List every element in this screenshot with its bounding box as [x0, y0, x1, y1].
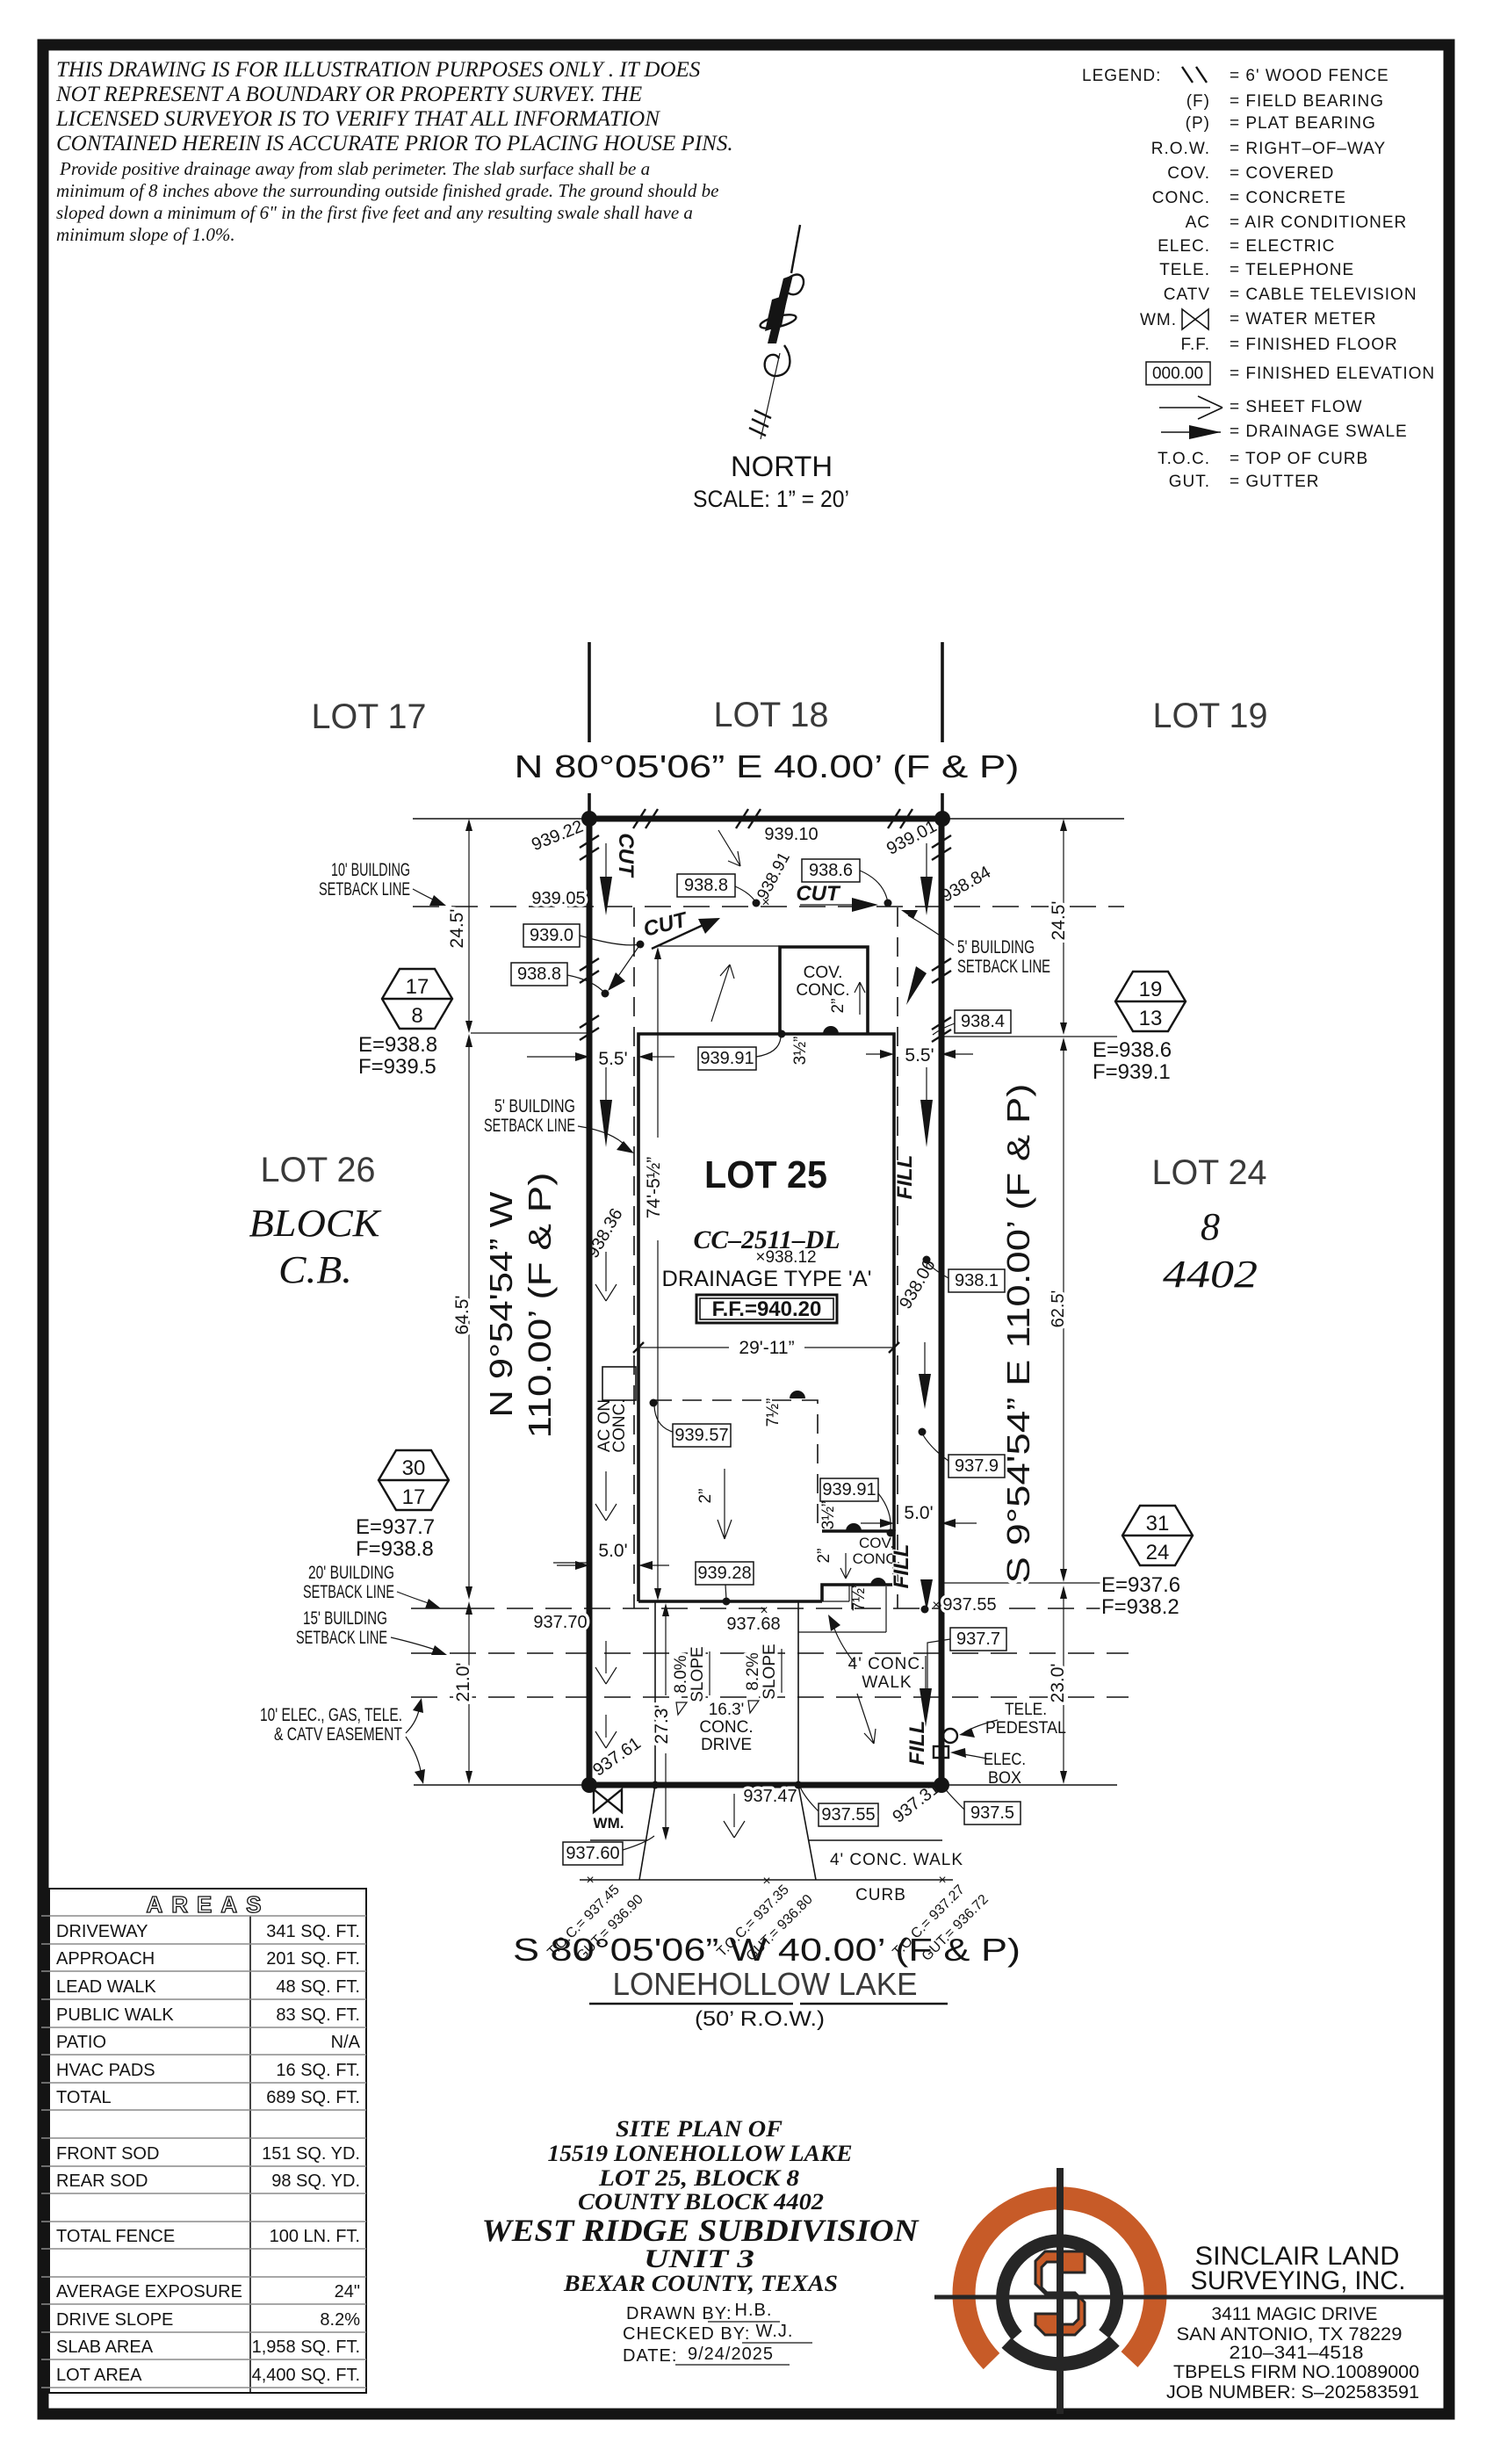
svg-text:= CONCRETE: = CONCRETE — [1230, 189, 1346, 207]
svg-text:= FIELD BEARING: = FIELD BEARING — [1230, 92, 1384, 111]
svg-text:DRIVEWAY: DRIVEWAY — [56, 1922, 148, 1941]
svg-text:LOT 17: LOT 17 — [312, 697, 427, 736]
svg-text:64.5': 64.5' — [452, 1296, 472, 1335]
svg-text:5.0': 5.0' — [598, 1541, 627, 1561]
svg-text:16.3': 16.3' — [709, 1701, 745, 1719]
svg-text:937.68: 937.68 — [726, 1615, 780, 1634]
svg-text:20' BUILDING: 20' BUILDING — [308, 1563, 394, 1583]
svg-text:W.J.: W.J. — [756, 2322, 794, 2341]
svg-text:31: 31 — [1146, 1512, 1170, 1535]
svg-text:TOTAL: TOTAL — [56, 2088, 112, 2107]
svg-text:SLOPE: SLOPE — [761, 1644, 779, 1699]
svg-text:SETBACK LINE: SETBACK LINE — [296, 1628, 387, 1648]
svg-text:AVERAGE EXPOSURE: AVERAGE EXPOSURE — [56, 2282, 242, 2301]
svg-text:×: × — [932, 1598, 940, 1613]
svg-text:DRIVE SLOPE: DRIVE SLOPE — [56, 2310, 173, 2330]
svg-text:30: 30 — [402, 1456, 426, 1480]
svg-text:= TELEPHONE: = TELEPHONE — [1230, 261, 1354, 279]
svg-text:NOT REPRESENT A BOUNDARY OR PR: NOT REPRESENT A BOUNDARY OR PROPERTY SUR… — [55, 83, 642, 106]
svg-text:(P): (P) — [1186, 114, 1210, 133]
svg-text:BOX: BOX — [988, 1769, 1021, 1788]
svg-text:CUT: CUT — [796, 882, 841, 906]
svg-text:938.8: 938.8 — [517, 965, 561, 984]
svg-text:= WATER METER: = WATER METER — [1230, 310, 1377, 329]
svg-text:SCALE: 1” = 20’: SCALE: 1” = 20’ — [693, 486, 849, 512]
svg-text:HVAC PADS: HVAC PADS — [56, 2061, 155, 2080]
svg-text:LEAD WALK: LEAD WALK — [56, 1977, 156, 1997]
svg-text:341 SQ. FT.: 341 SQ. FT. — [266, 1922, 360, 1941]
svg-text:19: 19 — [1139, 978, 1163, 1001]
svg-text:7½”: 7½” — [764, 1398, 783, 1427]
svg-text:5.5': 5.5' — [905, 1045, 934, 1066]
svg-text:PATIO: PATIO — [56, 2033, 106, 2052]
svg-text:S 9°54'54” E 110.00’ (F & P): S 9°54'54” E 110.00’ (F & P) — [1000, 1084, 1036, 1584]
svg-text:937.47: 937.47 — [743, 1787, 797, 1806]
svg-text:= PLAT BEARING: = PLAT BEARING — [1230, 114, 1376, 133]
svg-text:CATV: CATV — [1164, 285, 1210, 304]
svg-text:7½”: 7½” — [850, 1583, 869, 1612]
svg-text:4' CONC.: 4' CONC. — [848, 1655, 927, 1673]
svg-text:= COVERED: = COVERED — [1230, 164, 1334, 183]
svg-text:CONC.: CONC. — [1152, 189, 1210, 207]
svg-text:62.5': 62.5' — [1049, 1290, 1068, 1328]
svg-text:PUBLIC WALK: PUBLIC WALK — [56, 2005, 174, 2025]
svg-text:TELE.: TELE. — [1159, 261, 1210, 279]
svg-text:98 SQ. YD.: 98 SQ. YD. — [271, 2171, 360, 2191]
svg-text:16 SQ. FT.: 16 SQ. FT. — [276, 2061, 360, 2080]
svg-text:LOT 25: LOT 25 — [704, 1153, 827, 1196]
svg-text:F.F.: F.F. — [1180, 336, 1210, 354]
svg-text:sloped down a minimum of 6" in: sloped down a minimum of 6" in the first… — [56, 202, 693, 223]
svg-text:938.8: 938.8 — [684, 876, 728, 895]
svg-text:GUT.: GUT. — [1169, 473, 1210, 491]
svg-text:939.28: 939.28 — [697, 1564, 751, 1583]
svg-text:(50’ R.O.W.): (50’ R.O.W.) — [695, 2007, 825, 2031]
svg-text:×938.12: ×938.12 — [755, 1248, 816, 1267]
svg-text:4' CONC. WALK: 4' CONC. WALK — [830, 1851, 963, 1869]
svg-text:COUNTY BLOCK 4402: COUNTY BLOCK 4402 — [578, 2189, 824, 2215]
svg-text:937.70: 937.70 — [533, 1613, 587, 1632]
svg-text:CONC.: CONC. — [699, 1718, 753, 1737]
svg-text:LOT 26: LOT 26 — [261, 1151, 376, 1189]
svg-text:9/24/2025: 9/24/2025 — [688, 2345, 774, 2364]
svg-text:937.55: 937.55 — [821, 1805, 875, 1825]
svg-text:10' BUILDING: 10' BUILDING — [331, 860, 410, 880]
svg-text:= TOP OF CURB: = TOP OF CURB — [1230, 450, 1368, 468]
svg-text:939.05: 939.05 — [531, 889, 585, 908]
svg-text:8: 8 — [1201, 1205, 1220, 1248]
svg-text:BLOCK: BLOCK — [249, 1202, 383, 1245]
svg-text:689 SQ. FT.: 689 SQ. FT. — [266, 2088, 360, 2107]
svg-text:24": 24" — [335, 2282, 360, 2301]
svg-text:83 SQ. FT.: 83 SQ. FT. — [276, 2005, 360, 2025]
svg-text:F=939.5: F=939.5 — [358, 1055, 436, 1079]
svg-text:ELEC.: ELEC. — [1158, 237, 1210, 256]
svg-text:939.57: 939.57 — [674, 1426, 728, 1445]
svg-text:(F): (F) — [1186, 92, 1210, 111]
svg-text:N 80°05'06” E 40.00’ (F & P): N 80°05'06” E 40.00’ (F & P) — [515, 748, 1020, 784]
svg-text:8.2%: 8.2% — [320, 2310, 360, 2330]
svg-text:LOT 18: LOT 18 — [714, 696, 829, 734]
svg-text:3½”: 3½” — [819, 1501, 838, 1530]
svg-text:& CATV EASEMENT: & CATV EASEMENT — [274, 1724, 402, 1745]
svg-text:PEDESTAL: PEDESTAL — [985, 1719, 1066, 1738]
svg-text:SETBACK LINE: SETBACK LINE — [957, 957, 1050, 977]
svg-text:5' BUILDING: 5' BUILDING — [494, 1096, 575, 1116]
svg-text:COV.: COV. — [859, 1535, 894, 1551]
svg-text:LOT 24: LOT 24 — [1152, 1153, 1267, 1192]
svg-text:minimum slope of 1.0%.: minimum slope of 1.0%. — [56, 224, 235, 245]
svg-text:LICENSED SURVEYOR IS TO VERIFY: LICENSED SURVEYOR IS TO VERIFY THAT ALL … — [55, 107, 660, 131]
svg-text:5.0': 5.0' — [904, 1503, 933, 1523]
svg-text:2”: 2” — [829, 999, 847, 1014]
svg-text:100 LN. FT.: 100 LN. FT. — [270, 2227, 360, 2246]
svg-text:TELE.: TELE. — [1005, 1701, 1047, 1719]
svg-text:938.4: 938.4 — [961, 1012, 1005, 1031]
svg-text:THIS DRAWING IS FOR ILLUSTRATI: THIS DRAWING IS FOR ILLUSTRATION PURPOSE… — [56, 58, 701, 82]
svg-text:= DRAINAGE SWALE: = DRAINAGE SWALE — [1230, 423, 1408, 441]
svg-text:SLAB AREA: SLAB AREA — [56, 2338, 154, 2357]
svg-text:937.55: 937.55 — [942, 1595, 996, 1615]
svg-text:48 SQ. FT.: 48 SQ. FT. — [276, 1977, 360, 1997]
svg-text:SITE PLAN OF: SITE PLAN OF — [616, 2116, 783, 2142]
svg-text:SETBACK LINE: SETBACK LINE — [484, 1116, 575, 1136]
svg-text:R.O.W.: R.O.W. — [1151, 140, 1210, 158]
svg-text:S 80°05'06” W 40.00’ (F & P): S 80°05'06” W 40.00’ (F & P) — [513, 1932, 1021, 1968]
svg-text:= FINISHED FLOOR: = FINISHED FLOOR — [1230, 336, 1398, 354]
svg-text:×: × — [762, 1874, 770, 1889]
svg-text:110.00’ (F & P): 110.00’ (F & P) — [522, 1173, 558, 1439]
svg-text:FILL: FILL — [890, 1544, 913, 1589]
svg-text:3411 MAGIC DRIVE: 3411 MAGIC DRIVE — [1212, 2304, 1378, 2324]
svg-text:2”: 2” — [815, 1549, 833, 1564]
svg-text:N 9°54'54” W: N 9°54'54” W — [483, 1191, 519, 1417]
svg-text:210–341–4518: 210–341–4518 — [1230, 2343, 1364, 2363]
svg-text:939.91: 939.91 — [700, 1049, 754, 1068]
svg-text:4402: 4402 — [1163, 1253, 1258, 1296]
svg-text:ELEC.: ELEC. — [984, 1751, 1026, 1769]
svg-text:15' BUILDING: 15' BUILDING — [303, 1608, 387, 1629]
svg-text:T.O.C.: T.O.C. — [1158, 450, 1210, 468]
svg-text:10' ELEC., GAS, TELE.: 10' ELEC., GAS, TELE. — [260, 1705, 402, 1725]
svg-text:DRIVE: DRIVE — [701, 1736, 752, 1754]
svg-text:COV.: COV. — [804, 964, 843, 982]
svg-text:E=938.8: E=938.8 — [358, 1033, 437, 1057]
svg-text:FILL: FILL — [905, 1721, 929, 1766]
svg-text:201 SQ. FT.: 201 SQ. FT. — [266, 1949, 360, 1969]
svg-text:937.60: 937.60 — [566, 1844, 619, 1863]
svg-text:= SHEET FLOW: = SHEET FLOW — [1230, 398, 1363, 416]
svg-text:BEXAR COUNTY, TEXAS: BEXAR COUNTY, TEXAS — [563, 2271, 838, 2296]
svg-text:LEGEND:: LEGEND: — [1082, 67, 1161, 85]
svg-text:74'-5½”: 74'-5½” — [644, 1157, 664, 1219]
svg-text:= RIGHT–OF–WAY: = RIGHT–OF–WAY — [1230, 140, 1386, 158]
svg-text:E=937.6: E=937.6 — [1101, 1573, 1180, 1597]
svg-text:CONTAINED HEREIN IS ACCURATE P: CONTAINED HEREIN IS ACCURATE PRIOR TO PL… — [56, 132, 733, 155]
svg-text:8: 8 — [411, 1004, 422, 1028]
svg-text:= FINISHED ELEVATION: = FINISHED ELEVATION — [1230, 365, 1435, 383]
svg-text:4,400 SQ. FT.: 4,400 SQ. FT. — [252, 2366, 360, 2385]
svg-text:939.0: 939.0 — [530, 926, 573, 945]
svg-text:E=937.7: E=937.7 — [356, 1515, 435, 1539]
svg-text:1,958 SQ. FT.: 1,958 SQ. FT. — [252, 2338, 360, 2357]
svg-text:REAR SOD: REAR SOD — [56, 2171, 148, 2191]
svg-text:23.0': 23.0' — [1048, 1664, 1068, 1703]
svg-text:WM.: WM. — [594, 1815, 624, 1832]
svg-text:WALK: WALK — [862, 1673, 912, 1692]
svg-text:SLOPE: SLOPE — [689, 1646, 707, 1702]
svg-text:15519 LONEHOLLOW LAKE: 15519 LONEHOLLOW LAKE — [548, 2141, 853, 2166]
svg-text:TOTAL FENCE: TOTAL FENCE — [56, 2227, 175, 2246]
svg-text:APPROACH: APPROACH — [56, 1949, 155, 1969]
svg-text:H.B.: H.B. — [735, 2301, 773, 2320]
svg-text:CURB: CURB — [855, 1886, 906, 1904]
svg-text:FRONT SOD: FRONT SOD — [56, 2144, 159, 2164]
svg-text:937.5: 937.5 — [970, 1803, 1014, 1823]
svg-text:LOT 25, BLOCK 8: LOT 25, BLOCK 8 — [598, 2165, 799, 2191]
svg-text:×: × — [586, 1873, 594, 1888]
svg-text:UNIT 3: UNIT 3 — [644, 2244, 754, 2273]
svg-text:5.5': 5.5' — [598, 1049, 627, 1069]
svg-text:AREAS: AREAS — [146, 1891, 270, 1918]
svg-text:937.9: 937.9 — [955, 1456, 999, 1476]
svg-text:3½”: 3½” — [791, 1037, 810, 1066]
svg-text:24.5': 24.5' — [447, 909, 467, 949]
svg-text:LOT AREA: LOT AREA — [56, 2366, 142, 2385]
svg-text:SURVEYING, INC.: SURVEYING, INC. — [1191, 2266, 1406, 2295]
svg-text:000.00: 000.00 — [1152, 365, 1203, 383]
svg-text:F=939.1: F=939.1 — [1093, 1060, 1171, 1084]
svg-text:2”: 2” — [696, 1489, 715, 1504]
svg-text:151 SQ. YD.: 151 SQ. YD. — [262, 2144, 360, 2164]
svg-text:SETBACK LINE: SETBACK LINE — [319, 879, 410, 900]
svg-text:938.1: 938.1 — [955, 1271, 999, 1290]
svg-text:5' BUILDING: 5' BUILDING — [957, 937, 1035, 957]
svg-text:24.5': 24.5' — [1049, 901, 1069, 941]
svg-text:F.F.=940.20: F.F.=940.20 — [712, 1297, 822, 1321]
svg-text:17: 17 — [402, 1485, 426, 1509]
svg-text:E=938.6: E=938.6 — [1093, 1038, 1172, 1062]
svg-text:13: 13 — [1139, 1007, 1163, 1030]
svg-text:N/A: N/A — [331, 2033, 361, 2052]
svg-text:C.B.: C.B. — [278, 1248, 352, 1291]
svg-text:F=938.8: F=938.8 — [356, 1537, 434, 1561]
svg-text:29'-11”: 29'-11” — [739, 1338, 794, 1358]
svg-text:LONEHOLLOW LAKE: LONEHOLLOW LAKE — [613, 1966, 918, 2002]
svg-text:LOT 19: LOT 19 — [1153, 697, 1268, 735]
svg-text:8.2%: 8.2% — [744, 1652, 762, 1690]
svg-text:COV.: COV. — [1167, 164, 1210, 183]
svg-text:FILL: FILL — [893, 1155, 917, 1200]
svg-text:24: 24 — [1146, 1541, 1170, 1564]
svg-text:= CABLE TELEVISION: = CABLE TELEVISION — [1230, 285, 1417, 304]
svg-text:×: × — [938, 1873, 946, 1888]
svg-text:= GUTTER: = GUTTER — [1230, 473, 1319, 491]
svg-text:DRAWN BY:: DRAWN BY: — [626, 2304, 732, 2323]
svg-text:DRAINAGE TYPE 'A': DRAINAGE TYPE 'A' — [662, 1267, 872, 1291]
svg-text:21.0': 21.0' — [453, 1663, 473, 1702]
svg-text:DATE:: DATE: — [623, 2346, 677, 2366]
svg-text:17: 17 — [406, 975, 429, 999]
svg-text:937.7: 937.7 — [956, 1629, 1000, 1649]
svg-text:F=938.2: F=938.2 — [1101, 1595, 1179, 1619]
svg-text:SETBACK LINE: SETBACK LINE — [303, 1582, 394, 1602]
svg-text:939.91: 939.91 — [822, 1480, 876, 1499]
svg-text:CUT: CUT — [614, 833, 638, 878]
svg-text:CHECKED BY:: CHECKED BY: — [623, 2324, 750, 2344]
svg-text:TBPELS FIRM NO.10089000: TBPELS FIRM NO.10089000 — [1173, 2362, 1419, 2382]
svg-text:8.0%: 8.0% — [672, 1655, 690, 1693]
svg-text:938.6: 938.6 — [809, 861, 853, 880]
svg-text:WM.: WM. — [1140, 311, 1177, 329]
svg-text:= ELECTRIC: = ELECTRIC — [1230, 237, 1335, 256]
svg-text:939.10: 939.10 — [764, 825, 818, 844]
svg-text:27.3': 27.3' — [652, 1705, 672, 1745]
svg-text:minimum of 8 inches above the: minimum of 8 inches above the surroundin… — [56, 180, 718, 201]
svg-text:CONC.: CONC. — [610, 1398, 629, 1452]
svg-text:= AIR CONDITIONER: = AIR CONDITIONER — [1230, 213, 1407, 232]
svg-text:AC: AC — [1186, 213, 1210, 232]
svg-text:WEST RIDGE SUBDIVISION: WEST RIDGE SUBDIVISION — [482, 2213, 920, 2248]
svg-text:NORTH: NORTH — [731, 451, 833, 482]
svg-text:Provide positive drainage away: Provide positive drainage away from slab… — [59, 158, 650, 179]
svg-text:JOB NUMBER: S–202583591: JOB NUMBER: S–202583591 — [1166, 2382, 1419, 2403]
svg-text:CONC.: CONC. — [796, 981, 849, 1000]
svg-text:SAN ANTONIO, TX 78229: SAN ANTONIO, TX 78229 — [1177, 2324, 1403, 2345]
svg-text:= 6' WOOD FENCE: = 6' WOOD FENCE — [1230, 67, 1389, 85]
